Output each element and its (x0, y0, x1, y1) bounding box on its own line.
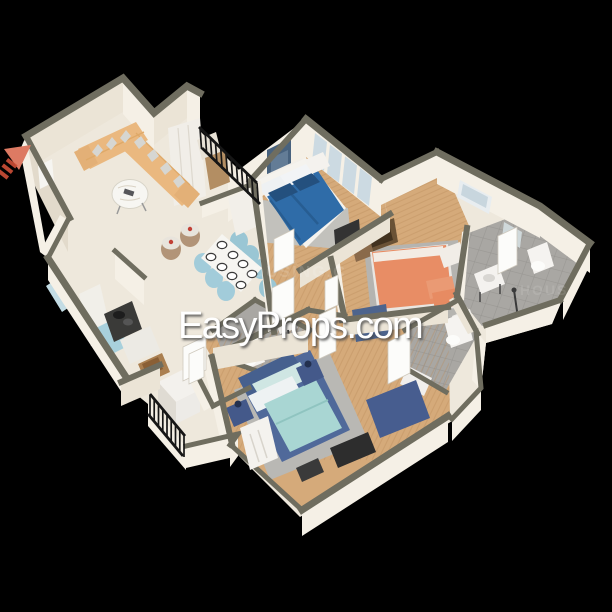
svg-text:HOUS: HOUS (520, 282, 568, 298)
svg-text:HOUSING.C: HOUSING.C (238, 264, 347, 281)
